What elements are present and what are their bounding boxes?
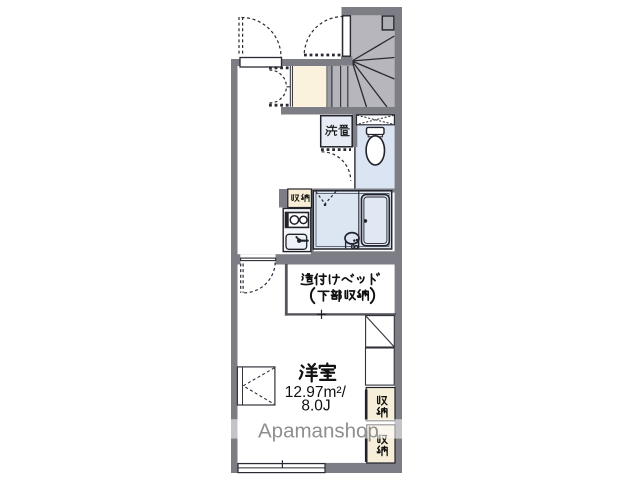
svg-text:Apamanshop: Apamanshop (258, 419, 379, 442)
svg-text:8.0J: 8.0J (301, 398, 330, 415)
